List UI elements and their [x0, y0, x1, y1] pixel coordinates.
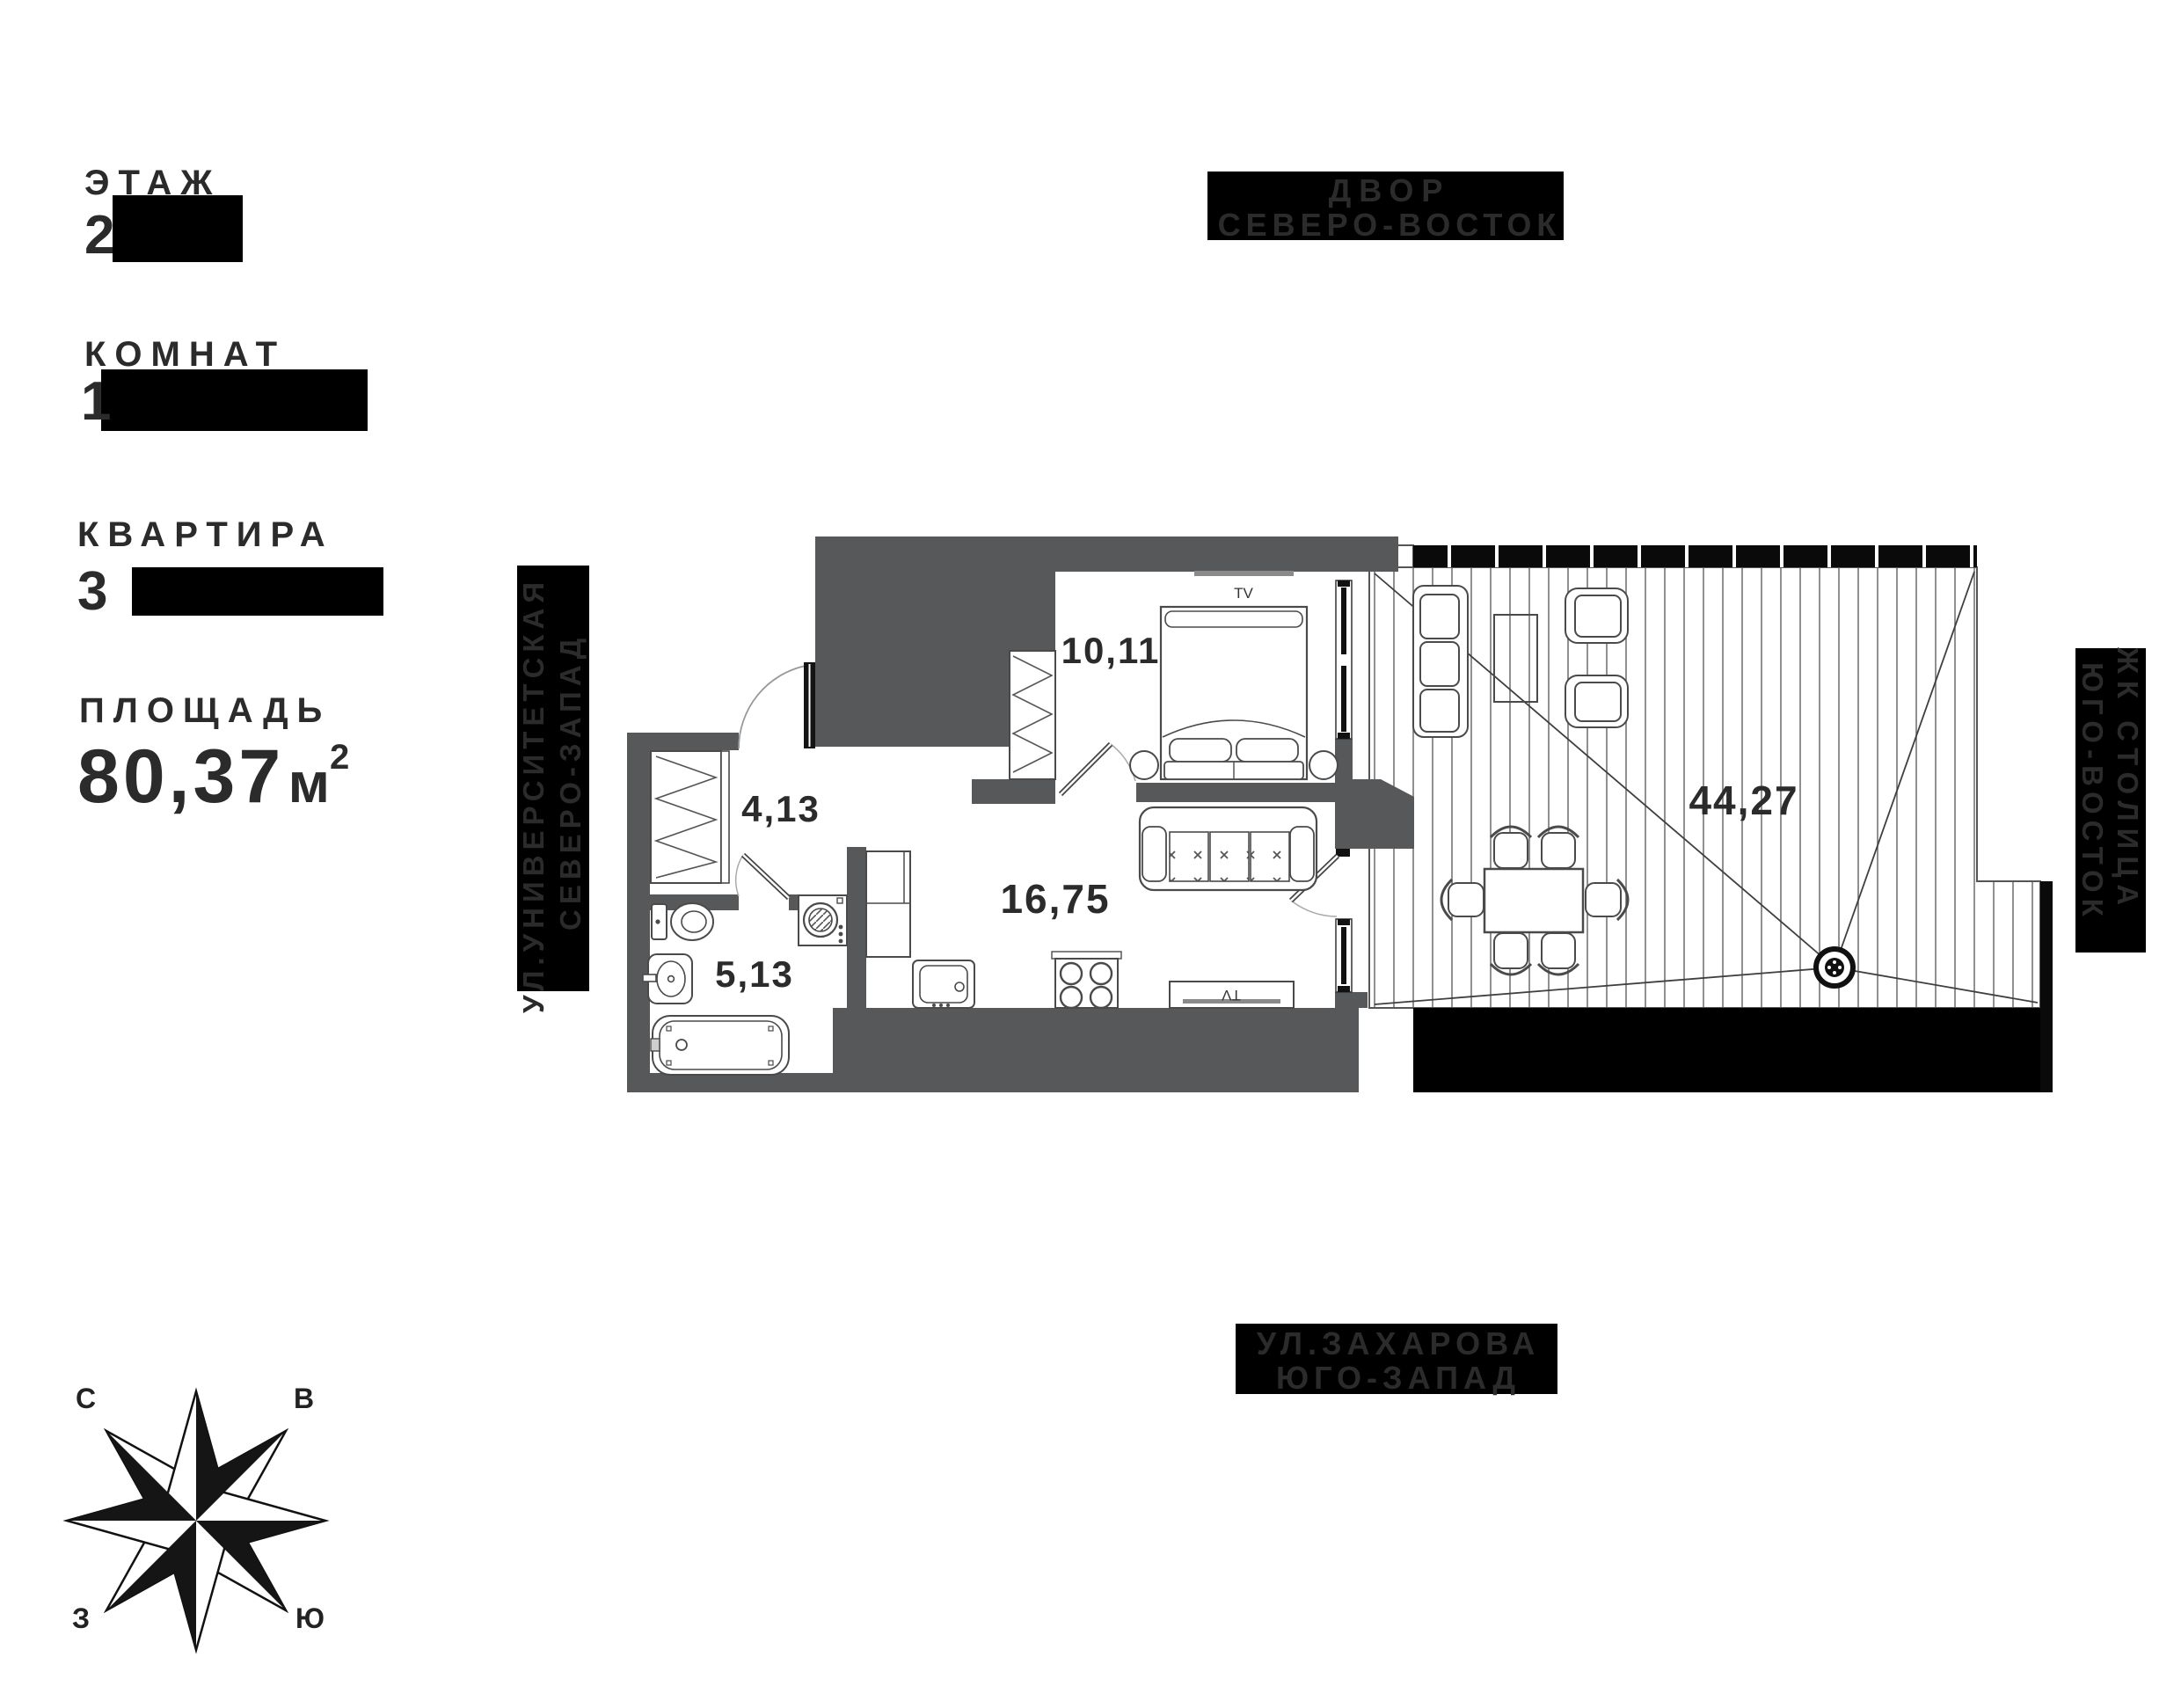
- living-tv-label: TV: [1221, 987, 1240, 1004]
- bedroom-area-label: 10,11: [1061, 630, 1161, 671]
- nightstand: [1130, 751, 1158, 779]
- wall-entry-block-lower: [815, 657, 1010, 747]
- wall-stub-bedroom-door: [972, 779, 1055, 804]
- washing-machine: [799, 895, 847, 945]
- bathtub: [651, 1016, 789, 1075]
- wall-entry-block-upper: [815, 536, 1055, 657]
- wall-under-window: [1335, 992, 1368, 1008]
- entry-door: [739, 662, 815, 748]
- compass-north-label: С: [76, 1383, 96, 1415]
- terrace-armchair-1: [1565, 588, 1628, 643]
- bedroom-window: [1336, 580, 1352, 739]
- wall-bath-right: [847, 847, 866, 1008]
- bathroom-area-label: 5,13: [715, 953, 794, 995]
- terrace-right-edge: [2040, 881, 2053, 1092]
- terrace-sofa: [1413, 586, 1468, 737]
- wall-living-divider: [1136, 783, 1335, 802]
- compass-south-label: Ю: [295, 1602, 325, 1635]
- terrace-drain-icon: [1816, 949, 1853, 986]
- living-sofa: [1140, 807, 1317, 890]
- compass-rose-icon: [67, 1391, 325, 1650]
- bedroom-door: [1061, 744, 1135, 794]
- wall-left-outer: [627, 733, 650, 1092]
- bedroom-wardrobe: [1010, 651, 1055, 779]
- bathroom-sink: [643, 954, 692, 1004]
- compass-west-label: З: [72, 1602, 90, 1635]
- stove: [1052, 952, 1121, 1008]
- terrace-bottom-band: [1413, 1008, 2040, 1092]
- floorplan-page: ЭТАЖ 2 КОМНАТ 1 КВАРТИРА 3 ПЛОЩАДЬ 80,37…: [0, 0, 2181, 1708]
- kitchen-sink: [913, 960, 974, 1008]
- bedroom-tv-label: TV: [1234, 585, 1253, 602]
- kitchen-living-area-label: 16,75: [1000, 876, 1110, 922]
- nightstand: [1309, 751, 1338, 779]
- hallway-area-label: 4,13: [741, 788, 821, 829]
- terrace-railing: [1413, 545, 1977, 567]
- living-window: [1336, 919, 1352, 992]
- toilet: [652, 903, 713, 940]
- bathroom-door: [736, 855, 789, 898]
- kitchen-counter: [866, 851, 910, 957]
- floorplan-drawing: 10,11 4,13 5,13 16,75 44,27 TV TV: [0, 0, 2181, 1708]
- terrace-area-label: 44,27: [1689, 777, 1798, 823]
- hall-wardrobe: [651, 751, 729, 883]
- bed: [1130, 607, 1338, 779]
- pillow: [1170, 739, 1231, 762]
- terrace-armchair-2: [1565, 675, 1628, 727]
- pillow: [1236, 739, 1298, 762]
- compass-east-label: В: [294, 1383, 314, 1415]
- bedroom-tv: [1194, 571, 1294, 576]
